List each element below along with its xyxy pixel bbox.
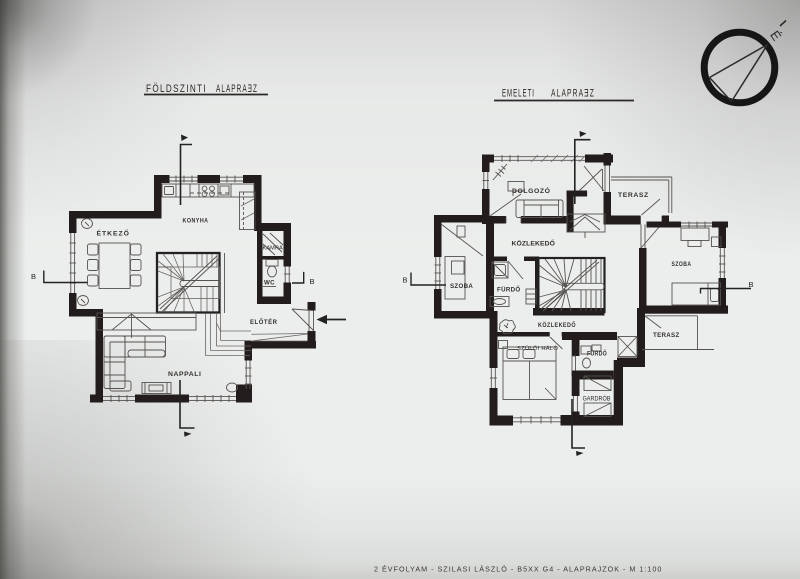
svg-text:SZÜLŐI HÁLÓ: SZÜLŐI HÁLÓ: [517, 345, 558, 352]
svg-text:SZOBA: SZOBA: [450, 283, 473, 290]
svg-text:B: B: [403, 276, 408, 285]
svg-text:ÉTKEZŐ: ÉTKEZŐ: [97, 229, 130, 238]
svg-text:B: B: [310, 277, 315, 286]
svg-text:KAMRA: KAMRA: [263, 246, 284, 252]
svg-text:FÖLDSZINTI: FÖLDSZINTI: [146, 83, 207, 95]
svg-text:ALAPRAƎZ: ALAPRAƎZ: [216, 83, 258, 95]
svg-text:FÜRDŐ: FÜRDŐ: [497, 287, 521, 294]
svg-text:KONYHA: KONYHA: [183, 218, 209, 225]
svg-text:WC: WC: [264, 280, 275, 287]
svg-text:EMELETI: EMELETI: [502, 88, 535, 100]
svg-text:B: B: [31, 272, 36, 281]
svg-text:TERASZ: TERASZ: [653, 332, 680, 339]
svg-text:2 ÉVFOLYAM - SZILASI LÁSZLÓ -: 2 ÉVFOLYAM - SZILASI LÁSZLÓ - B5XX G4 - …: [374, 565, 662, 574]
svg-text:ELŐTÉR: ELŐTÉR: [250, 317, 278, 326]
svg-text:KÖZLEKEDŐ: KÖZLEKEDŐ: [538, 320, 576, 329]
svg-text:TERASZ: TERASZ: [618, 192, 649, 199]
svg-text:DOLGOZÓ: DOLGOZÓ: [512, 186, 551, 195]
svg-text:FÜRDŐ: FÜRDŐ: [587, 351, 607, 358]
svg-text:GARDRÓB: GARDRÓB: [583, 396, 611, 403]
svg-text:SZOBA: SZOBA: [672, 261, 692, 268]
svg-text:KÖZLEKEDŐ: KÖZLEKEDŐ: [512, 239, 556, 248]
svg-text:B: B: [749, 280, 754, 289]
svg-text:NAPPALI: NAPPALI: [168, 371, 202, 378]
svg-text:ALAPRAƎZ: ALAPRAƎZ: [551, 88, 595, 100]
